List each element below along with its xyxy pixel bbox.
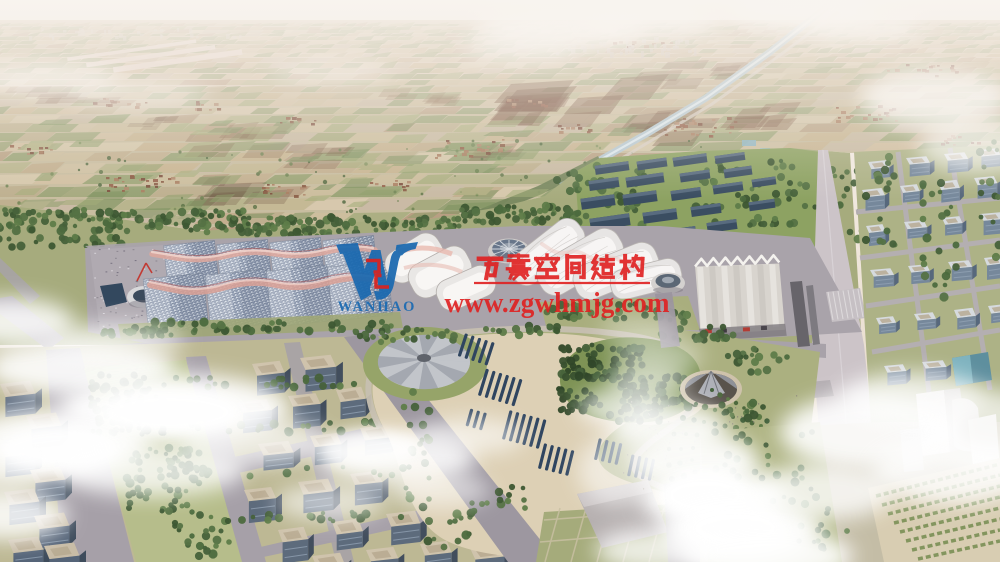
svg-text:WANHAO: WANHAO xyxy=(338,299,417,315)
svg-text:www.zgwhmjg.com: www.zgwhmjg.com xyxy=(445,288,670,319)
